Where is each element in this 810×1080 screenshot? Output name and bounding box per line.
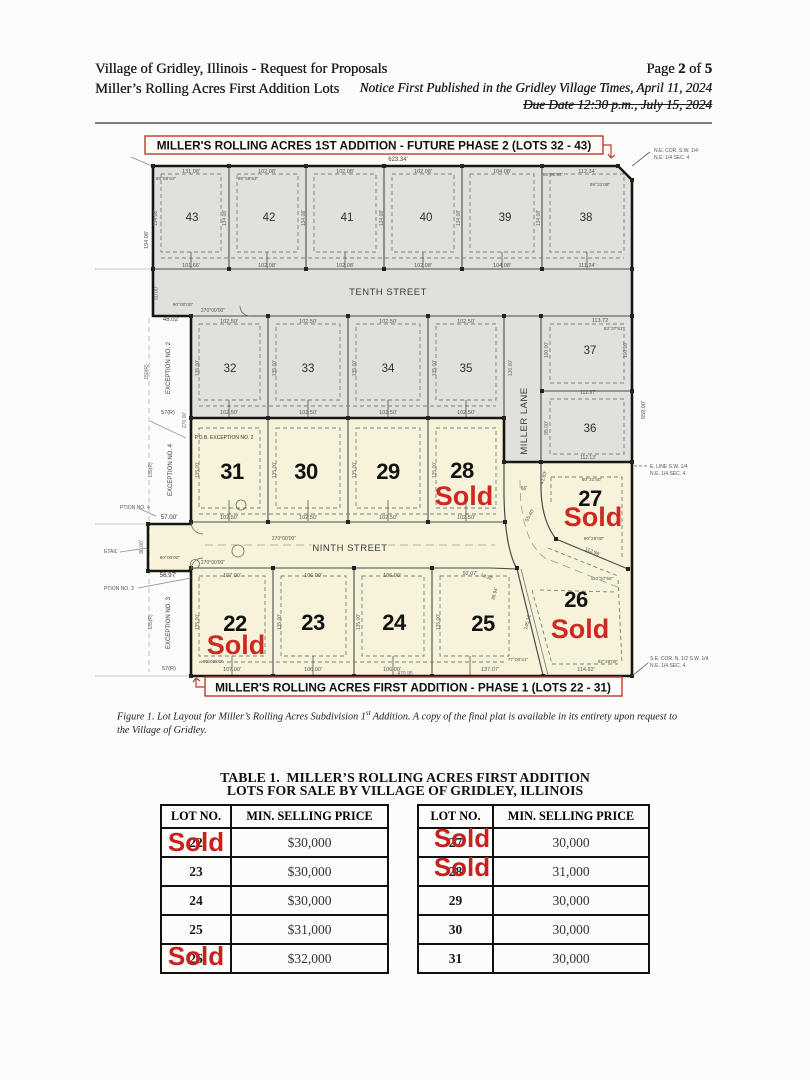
svg-text:57.00': 57.00' <box>161 514 178 521</box>
svg-text:106.00': 106.00' <box>304 573 322 579</box>
svg-text:N.E. 1/4 SEC. 4: N.E. 1/4 SEC. 4 <box>650 663 686 669</box>
svg-text:32: 32 <box>224 363 237 375</box>
svg-text:270°00'00": 270°00'00" <box>201 560 225 566</box>
svg-text:56.97': 56.97' <box>160 572 177 579</box>
svg-text:30: 30 <box>294 459 318 484</box>
svg-text:N.E. 1/4 SEC. 4: N.E. 1/4 SEC. 4 <box>654 155 690 161</box>
svg-text:135.00': 135.00' <box>432 360 438 376</box>
svg-text:40: 40 <box>420 212 433 224</box>
svg-text:134.08': 134.08' <box>153 210 159 226</box>
svg-text:92°28'09": 92°28'09" <box>598 659 619 665</box>
svg-text:33: 33 <box>302 363 315 375</box>
svg-text:N.E. COR. S.W. 1/4: N.E. COR. S.W. 1/4 <box>654 148 698 154</box>
svg-text:31: 31 <box>220 459 244 484</box>
svg-text:134.08': 134.08' <box>536 210 542 226</box>
svg-text:34: 34 <box>382 363 395 375</box>
svg-text:135.00': 135.00' <box>352 462 358 478</box>
svg-text:137.07': 137.07' <box>481 667 499 673</box>
svg-text:104.08': 104.08' <box>493 169 511 175</box>
svg-text:135(R): 135(R) <box>148 614 154 630</box>
svg-text:P.O.B. EXCEPTION NO. 2: P.O.B. EXCEPTION NO. 2 <box>195 435 254 441</box>
svg-text:135.00': 135.00' <box>195 360 201 376</box>
svg-text:Sold: Sold <box>564 502 623 532</box>
svg-text:131.08': 131.08' <box>182 169 200 175</box>
svg-text:102.08': 102.08' <box>258 169 276 175</box>
svg-text:107.00': 107.00' <box>223 573 241 579</box>
svg-text:83°37'51": 83°37'51" <box>604 326 625 332</box>
svg-text:90°00'00": 90°00'00" <box>160 555 181 561</box>
svg-text:PTION NO. 4: PTION NO. 4 <box>120 505 150 511</box>
svg-text:28: 28 <box>450 458 474 483</box>
svg-text:80°31'50": 80°31'50" <box>582 477 603 483</box>
svg-text:136.00': 136.00' <box>508 360 514 376</box>
svg-text:90°28'09": 90°28'09" <box>584 536 605 542</box>
svg-text:90.00': 90.00' <box>139 540 145 554</box>
svg-text:135.00': 135.00' <box>272 462 278 478</box>
svg-text:623.34': 623.34' <box>388 157 408 163</box>
svg-text:150(R): 150(R) <box>144 364 150 380</box>
svg-text:135.00': 135.00' <box>277 614 283 630</box>
svg-text:24: 24 <box>382 610 407 635</box>
svg-text:41: 41 <box>341 212 354 224</box>
svg-text:270.00': 270.00' <box>182 412 188 428</box>
svg-text:89°50'53": 89°50'53" <box>543 172 564 178</box>
svg-text:35: 35 <box>460 363 473 375</box>
svg-text:77°00'31": 77°00'31" <box>508 657 529 663</box>
svg-text:ETAIL': ETAIL' <box>104 549 119 555</box>
svg-text:102.50': 102.50' <box>457 319 475 325</box>
svg-text:135.00': 135.00' <box>272 360 278 376</box>
svg-text:194.08': 194.08' <box>144 231 150 249</box>
svg-text:Sold: Sold <box>207 630 266 660</box>
svg-text:MILLER LANE: MILLER LANE <box>519 387 530 454</box>
svg-text:23: 23 <box>301 610 325 635</box>
svg-text:60.00': 60.00' <box>154 286 160 300</box>
svg-text:134.08': 134.08' <box>456 210 462 226</box>
svg-text:36: 36 <box>584 423 597 435</box>
svg-text:139(R): 139(R) <box>148 462 154 478</box>
svg-text:135.00': 135.00' <box>352 360 358 376</box>
svg-text:102.08': 102.08' <box>414 169 432 175</box>
svg-text:S.E. COR. N. 1/2 S.W. 1/4: S.E. COR. N. 1/2 S.W. 1/4 <box>650 656 709 662</box>
svg-text:EXCEPTION NO. 3: EXCEPTION NO. 3 <box>166 596 172 649</box>
svg-text:134.08': 134.08' <box>222 210 228 226</box>
svg-text:102.08': 102.08' <box>336 169 354 175</box>
svg-text:114.92': 114.92' <box>577 667 594 673</box>
svg-text:90°00'00": 90°00'00" <box>203 659 224 665</box>
svg-text:43: 43 <box>186 212 199 224</box>
svg-text:102.50': 102.50' <box>299 319 317 325</box>
svg-text:113.72: 113.72 <box>592 318 608 324</box>
svg-text:57(R): 57(R) <box>161 410 175 416</box>
svg-text:57(R): 57(R) <box>162 666 176 672</box>
svg-text:89°59'53": 89°59'53" <box>238 176 259 182</box>
svg-text:135.00': 135.00' <box>432 462 438 478</box>
svg-text:112.34': 112.34' <box>578 169 595 175</box>
svg-text:89°59'53": 89°59'53" <box>156 176 177 182</box>
svg-text:134.08': 134.08' <box>301 210 307 226</box>
svg-text:66': 66' <box>521 486 528 492</box>
svg-text:37: 37 <box>584 345 597 357</box>
svg-text:48.02': 48.02' <box>163 317 179 323</box>
svg-text:39: 39 <box>499 212 512 224</box>
svg-text:N.E. 1/4 SEC. 4: N.E. 1/4 SEC. 4 <box>650 471 686 477</box>
svg-text:TENTH STREET: TENTH STREET <box>349 287 427 298</box>
svg-text:270°00'00": 270°00'00" <box>201 308 225 314</box>
svg-text:135.00': 135.00' <box>356 614 362 630</box>
svg-text:112.13': 112.13' <box>580 455 596 461</box>
svg-text:NINTH STREET: NINTH STREET <box>312 543 387 554</box>
svg-text:90°00'00": 90°00'00" <box>173 302 194 308</box>
svg-text:MILLER'S ROLLING ACRES FIRST A: MILLER'S ROLLING ACRES FIRST ADDITION - … <box>215 681 611 695</box>
svg-text:EXCEPTION NO. 2: EXCEPTION NO. 2 <box>166 341 172 394</box>
svg-text:29: 29 <box>376 459 400 484</box>
svg-text:E. LINE S.W. 1/4: E. LINE S.W. 1/4 <box>650 464 688 470</box>
svg-text:100.00': 100.00' <box>623 342 629 358</box>
svg-text:112.97': 112.97' <box>580 390 596 396</box>
svg-text:Sold: Sold <box>435 481 494 511</box>
svg-text:135.00': 135.00' <box>436 614 442 630</box>
svg-text:42: 42 <box>263 212 276 224</box>
svg-text:135.00': 135.00' <box>195 462 201 478</box>
svg-text:100.00': 100.00' <box>544 342 550 358</box>
svg-text:26: 26 <box>564 587 588 612</box>
svg-text:102.50': 102.50' <box>220 319 238 325</box>
svg-text:110°57'56": 110°57'56" <box>591 576 614 582</box>
svg-text:PTION NO. 3: PTION NO. 3 <box>104 586 134 592</box>
svg-text:MILLER'S ROLLING ACRES 1ST ADD: MILLER'S ROLLING ACRES 1ST ADDITION - FU… <box>157 139 592 153</box>
svg-text:89°31'08": 89°31'08" <box>590 182 611 188</box>
svg-text:EXCEPTION NO. 4: EXCEPTION NO. 4 <box>168 443 174 496</box>
svg-text:106.00': 106.00' <box>383 573 401 579</box>
svg-text:92.07': 92.07' <box>463 571 478 577</box>
svg-text:Sold: Sold <box>551 614 610 644</box>
svg-text:25: 25 <box>471 611 495 636</box>
svg-text:95.00': 95.00' <box>544 421 550 435</box>
svg-text:135.00': 135.00' <box>195 614 201 630</box>
svg-text:659.00': 659.00' <box>641 401 647 419</box>
svg-text:102.50': 102.50' <box>379 319 397 325</box>
svg-text:38: 38 <box>580 212 593 224</box>
svg-text:470.95: 470.95 <box>397 671 413 677</box>
svg-text:270°00'00": 270°00'00" <box>272 536 296 542</box>
svg-text:134.08': 134.08' <box>379 210 385 226</box>
